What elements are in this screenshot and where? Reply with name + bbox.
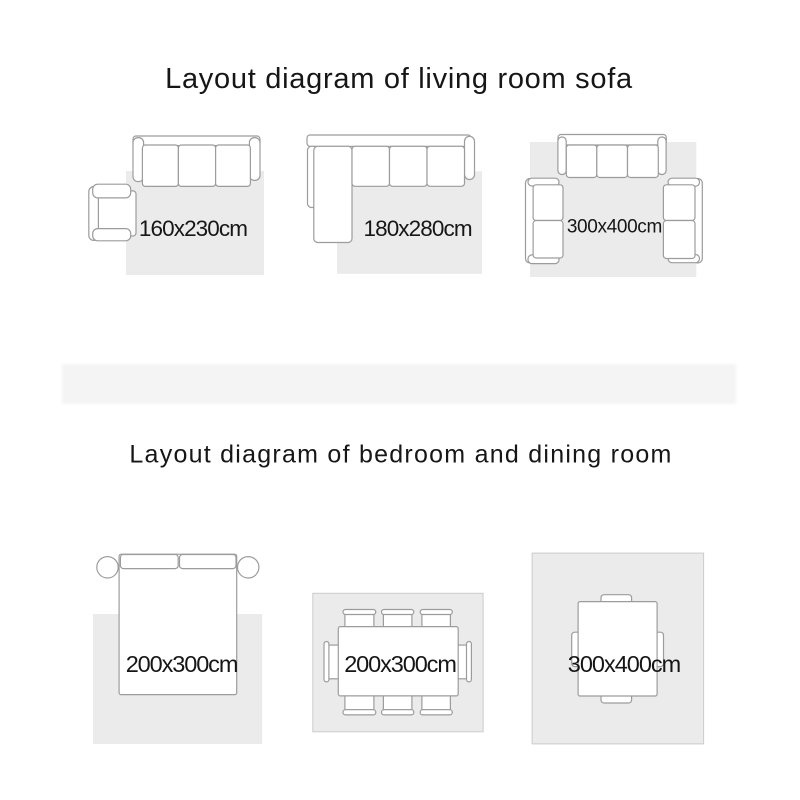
svg-text:Layout diagram of bedroom and: Layout diagram of bedroom and dining roo… <box>129 441 672 469</box>
svg-text:300x400cm: 300x400cm <box>568 651 681 677</box>
svg-text:160x230cm: 160x230cm <box>139 216 247 241</box>
svg-text:200x300cm: 200x300cm <box>126 651 238 677</box>
svg-text:200x300cm: 200x300cm <box>344 651 456 677</box>
svg-text:Layout diagram of living room: Layout diagram of living room sofa <box>165 63 633 95</box>
svg-text:180x280cm: 180x280cm <box>363 216 471 241</box>
svg-text:300x400cm: 300x400cm <box>567 216 662 237</box>
